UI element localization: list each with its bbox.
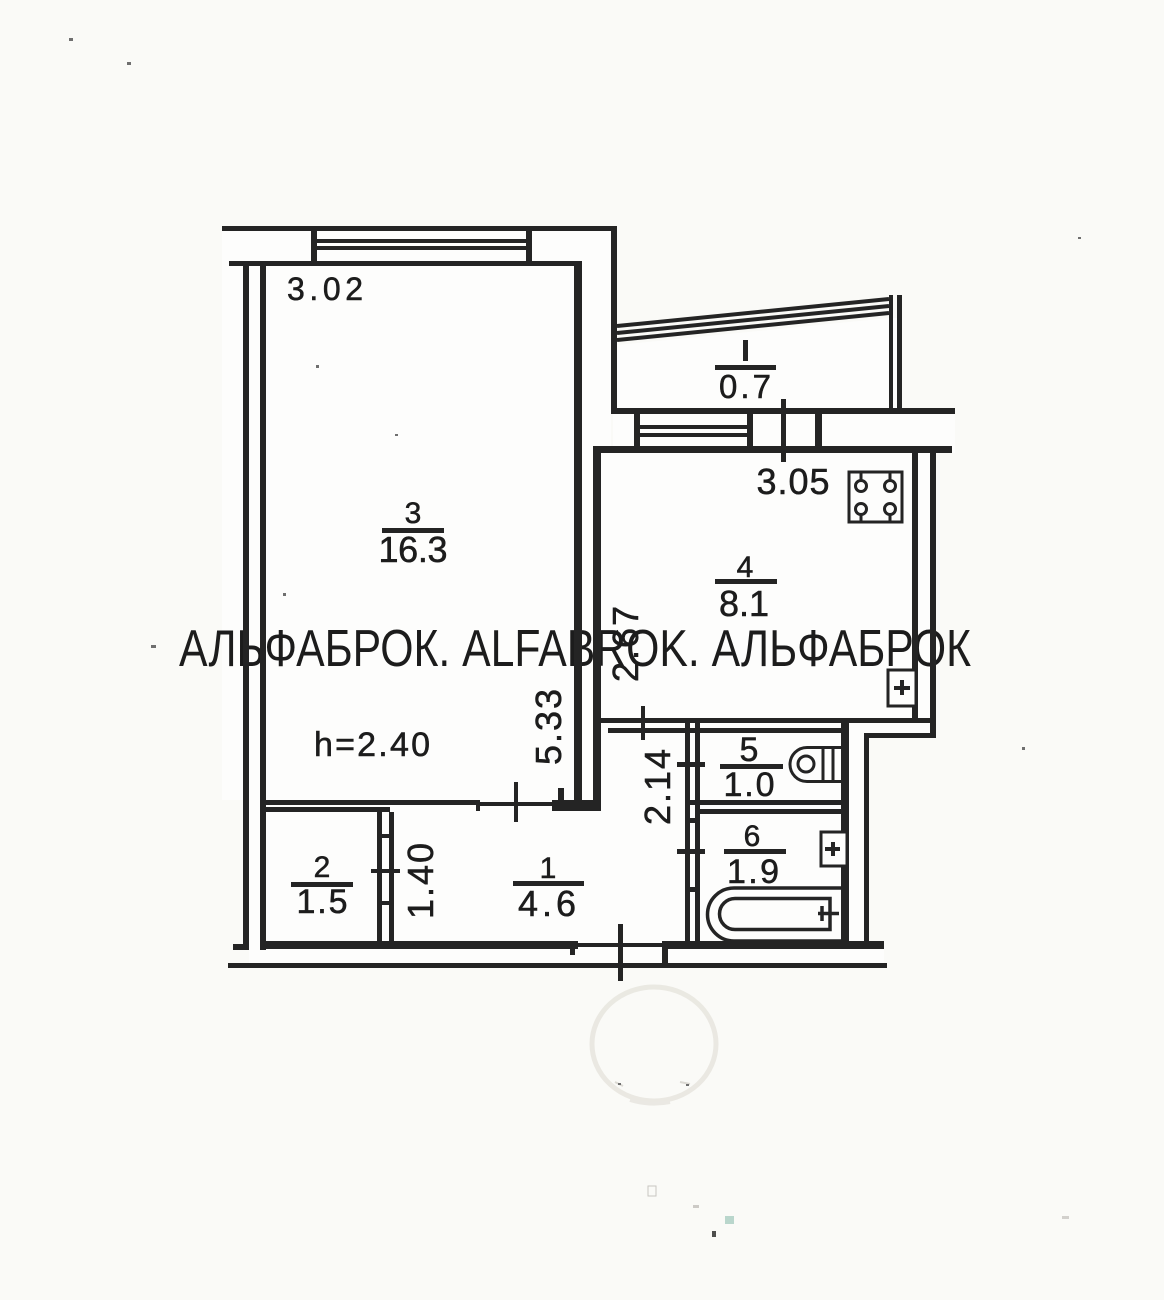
svg-text:8.1: 8.1 <box>719 583 769 624</box>
svg-text:2.14: 2.14 <box>637 749 678 825</box>
svg-text:16.3: 16.3 <box>379 529 448 570</box>
svg-text:6: 6 <box>744 820 761 853</box>
svg-text:1.0: 1.0 <box>724 766 775 804</box>
svg-text:3.02: 3.02 <box>287 271 363 307</box>
svg-text:3.05: 3.05 <box>757 461 830 502</box>
svg-text:4.6: 4.6 <box>518 883 576 924</box>
svg-text:0.7: 0.7 <box>719 368 771 405</box>
svg-text:2.67: 2.67 <box>605 606 646 682</box>
svg-text:1.9: 1.9 <box>727 853 779 891</box>
svg-text:1.5: 1.5 <box>297 883 348 921</box>
svg-text:1: 1 <box>540 852 557 885</box>
svg-text:1.40: 1.40 <box>400 843 441 919</box>
svg-text:h=2.40: h=2.40 <box>314 726 430 764</box>
svg-text:5.33: 5.33 <box>528 689 569 765</box>
svg-text:5: 5 <box>740 731 759 769</box>
svg-text:2: 2 <box>314 851 331 884</box>
svg-text:3: 3 <box>405 497 422 530</box>
